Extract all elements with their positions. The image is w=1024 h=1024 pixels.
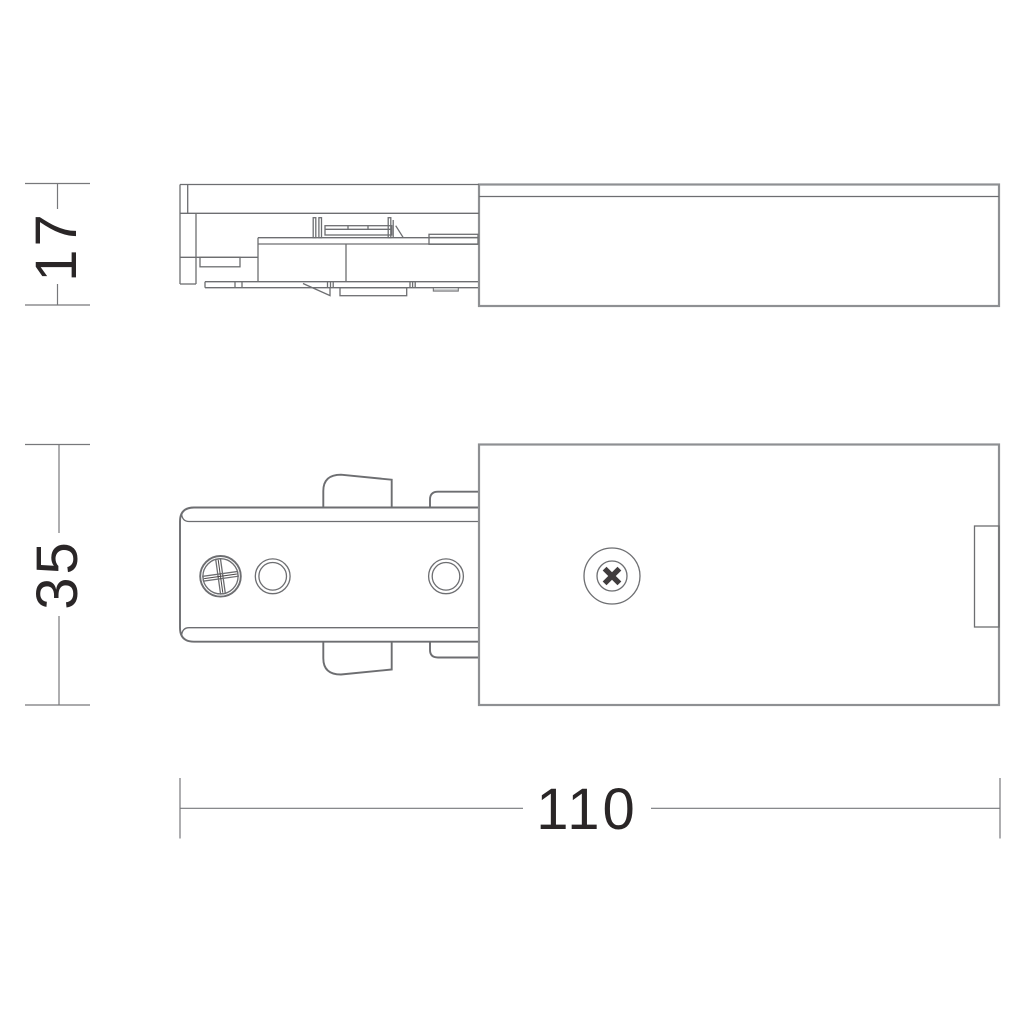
phillips-screw-icon — [200, 556, 241, 597]
dimension-110-label: 110 — [536, 777, 637, 842]
mounting-hole-left — [255, 559, 290, 594]
latch-plate — [325, 226, 392, 235]
hole-outer — [429, 559, 464, 594]
locking-tab-top — [323, 475, 391, 508]
locking-tab-bottom — [323, 642, 391, 675]
dimension-17-label: 17 — [24, 211, 89, 282]
adapter-body-outline — [180, 508, 479, 642]
dimension-110: 110 — [180, 777, 1000, 842]
cover-outline — [479, 185, 999, 307]
contact-pin — [313, 218, 316, 238]
dimension-17: 17 — [24, 184, 90, 306]
mounting-hole-right — [429, 559, 464, 594]
latch-hook — [303, 284, 330, 296]
lower-notch — [200, 257, 240, 267]
cover-end-notch — [975, 526, 1000, 627]
right-tab — [429, 234, 478, 244]
side-view — [180, 185, 999, 307]
contact-pin — [319, 218, 322, 238]
technical-drawing-canvas: 17 35 110 — [0, 0, 1024, 1024]
dimension-35: 35 — [25, 445, 90, 706]
contact-latch-details — [313, 218, 478, 245]
body-inner-line-bottom — [182, 628, 480, 637]
contact-strip — [433, 288, 458, 292]
latch-ramp-line — [396, 226, 404, 238]
cover-outline — [479, 445, 999, 706]
lower-housing-block — [340, 288, 407, 296]
front-view — [180, 445, 999, 706]
small-tab-bottom — [430, 642, 479, 658]
hole-inner — [259, 563, 287, 591]
body-inner-line-top — [182, 513, 480, 522]
hole-outer — [255, 559, 290, 594]
adapter-left-foot — [180, 213, 258, 284]
small-tab-top — [430, 492, 479, 508]
hole-inner — [432, 563, 460, 591]
center-screw-icon — [584, 548, 640, 604]
bottom-contact-plate — [205, 282, 478, 296]
dimension-35-label: 35 — [25, 539, 90, 610]
